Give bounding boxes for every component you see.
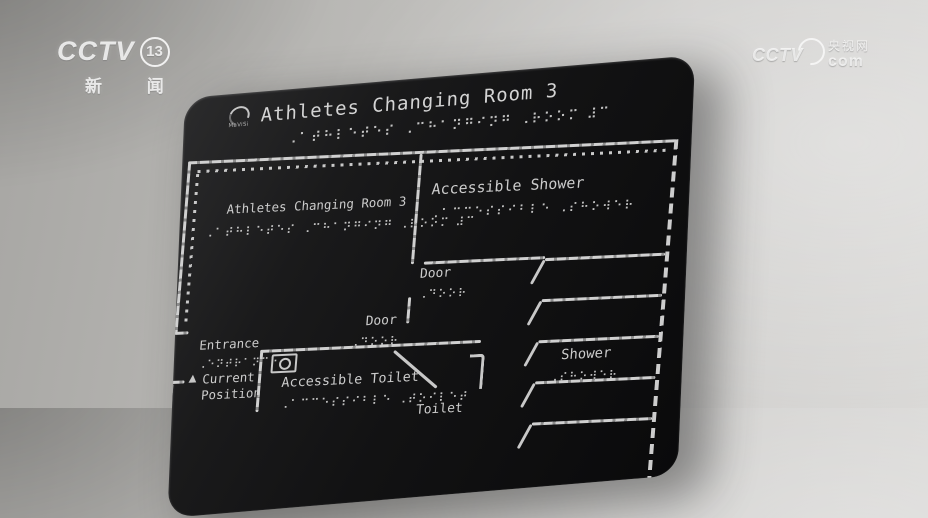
cctvcom-site-name: 央视网: [828, 40, 870, 53]
accessible-shower-braille: ⠠⠁⠉⠉⠑⠎⠎⠊⠃⠇⠑ ⠠⠎⠓⠕⠺⠑⠗: [429, 197, 636, 221]
channel-13-badge: 13: [140, 37, 170, 67]
current-position-label: Current Position: [200, 369, 270, 403]
cctvcom-watermark: CCTV 央视网 com: [752, 40, 870, 71]
cctv13-news-subtitle: 新 闻: [85, 72, 184, 97]
changing-room-area: Athletes Changing Room 3 ⠠⠁⠞⠓⠇⠑⠞⠑⠎ ⠠⠉⠓⠁⠝…: [204, 193, 428, 241]
stall-divider: [532, 417, 653, 425]
center-wall-stub: [406, 297, 411, 323]
cctv-logo-text: CCTV: [57, 36, 135, 67]
stall-divider: [545, 253, 666, 261]
map-border-right: [646, 139, 679, 500]
map-border-left-lower: [167, 384, 173, 518]
shower-area: Shower ⠠⠎⠓⠕⠺⠑⠗: [559, 345, 621, 385]
accessible-shower-label: Accessible Shower: [431, 173, 585, 198]
entrance-area: Entrance ⠠⠑⠝⠞⠗⠁⠝⠉⠑: [197, 334, 281, 372]
cctv13-logo-row: CCTV 13: [57, 36, 184, 67]
changing-room-label: Athletes Changing Room 3: [226, 193, 407, 216]
cctvcom-domain: com: [828, 53, 870, 71]
stall-door-leaf: [527, 301, 543, 326]
stall-door-leaf: [523, 342, 539, 367]
current-position-marker-icon: ▲: [188, 372, 197, 385]
shower-label: Shower: [560, 345, 612, 363]
map-border-left-upper: [174, 161, 191, 334]
entrance-gap-tick-bottom: [170, 380, 184, 384]
entrance-gap-tick-top: [174, 331, 188, 335]
changing-room-braille: ⠠⠁⠞⠓⠇⠑⠞⠑⠎ ⠠⠉⠓⠁⠝⠛⠊⠝⠛ ⠠⠗⠕⠕⠍ ⠼⠉: [204, 217, 426, 241]
stall-door-leaf: [520, 383, 536, 408]
door-upper-braille: ⠠⠙⠕⠕⠗: [418, 286, 468, 302]
door-lower-braille: ⠠⠙⠕⠕⠗: [350, 334, 400, 350]
door-lower-label: Door: [365, 313, 397, 329]
entrance-label: Entrance: [199, 335, 260, 353]
shower-corridor-wall: [424, 256, 546, 265]
door-upper-area: Door ⠠⠙⠕⠕⠗: [418, 265, 470, 302]
toilet-label: Toilet: [415, 401, 463, 418]
current-position-area: ▲ Current Position: [187, 369, 271, 404]
tactile-map-plaque: MaViSi Athletes Changing Room 3 ⠠⠁⠞⠓⠇⠑⠞⠑…: [167, 55, 695, 518]
cctv13-watermark: CCTV 13 新 闻: [57, 36, 184, 97]
toilet-area: Toilet: [415, 401, 463, 418]
stall-door-leaf: [517, 424, 533, 449]
door-upper-label: Door: [419, 265, 451, 281]
accessible-toilet-label: Accessible Toilet: [281, 369, 420, 391]
tactile-floor-map: Athletes Changing Room 3 ⠠⠁⠞⠓⠇⠑⠞⠑⠎ ⠠⠉⠓⠁⠝…: [167, 139, 681, 518]
shower-braille: ⠠⠎⠓⠕⠺⠑⠗: [549, 368, 619, 385]
door-lower-area: Door ⠠⠙⠕⠕⠗: [363, 313, 401, 350]
mavisi-logo: MaViSi: [225, 105, 252, 129]
stall-door-leaf: [530, 260, 546, 285]
accessible-shower-area: Accessible Shower ⠠⠁⠉⠉⠑⠎⠎⠊⠃⠇⠑ ⠠⠎⠓⠕⠺⠑⠗: [429, 171, 638, 221]
cctvcom-logo-text: CCTV: [752, 45, 803, 66]
cctvcom-site-block: 央视网 com: [828, 40, 870, 71]
stall-divider: [542, 294, 663, 302]
stall-divider: [538, 335, 659, 343]
